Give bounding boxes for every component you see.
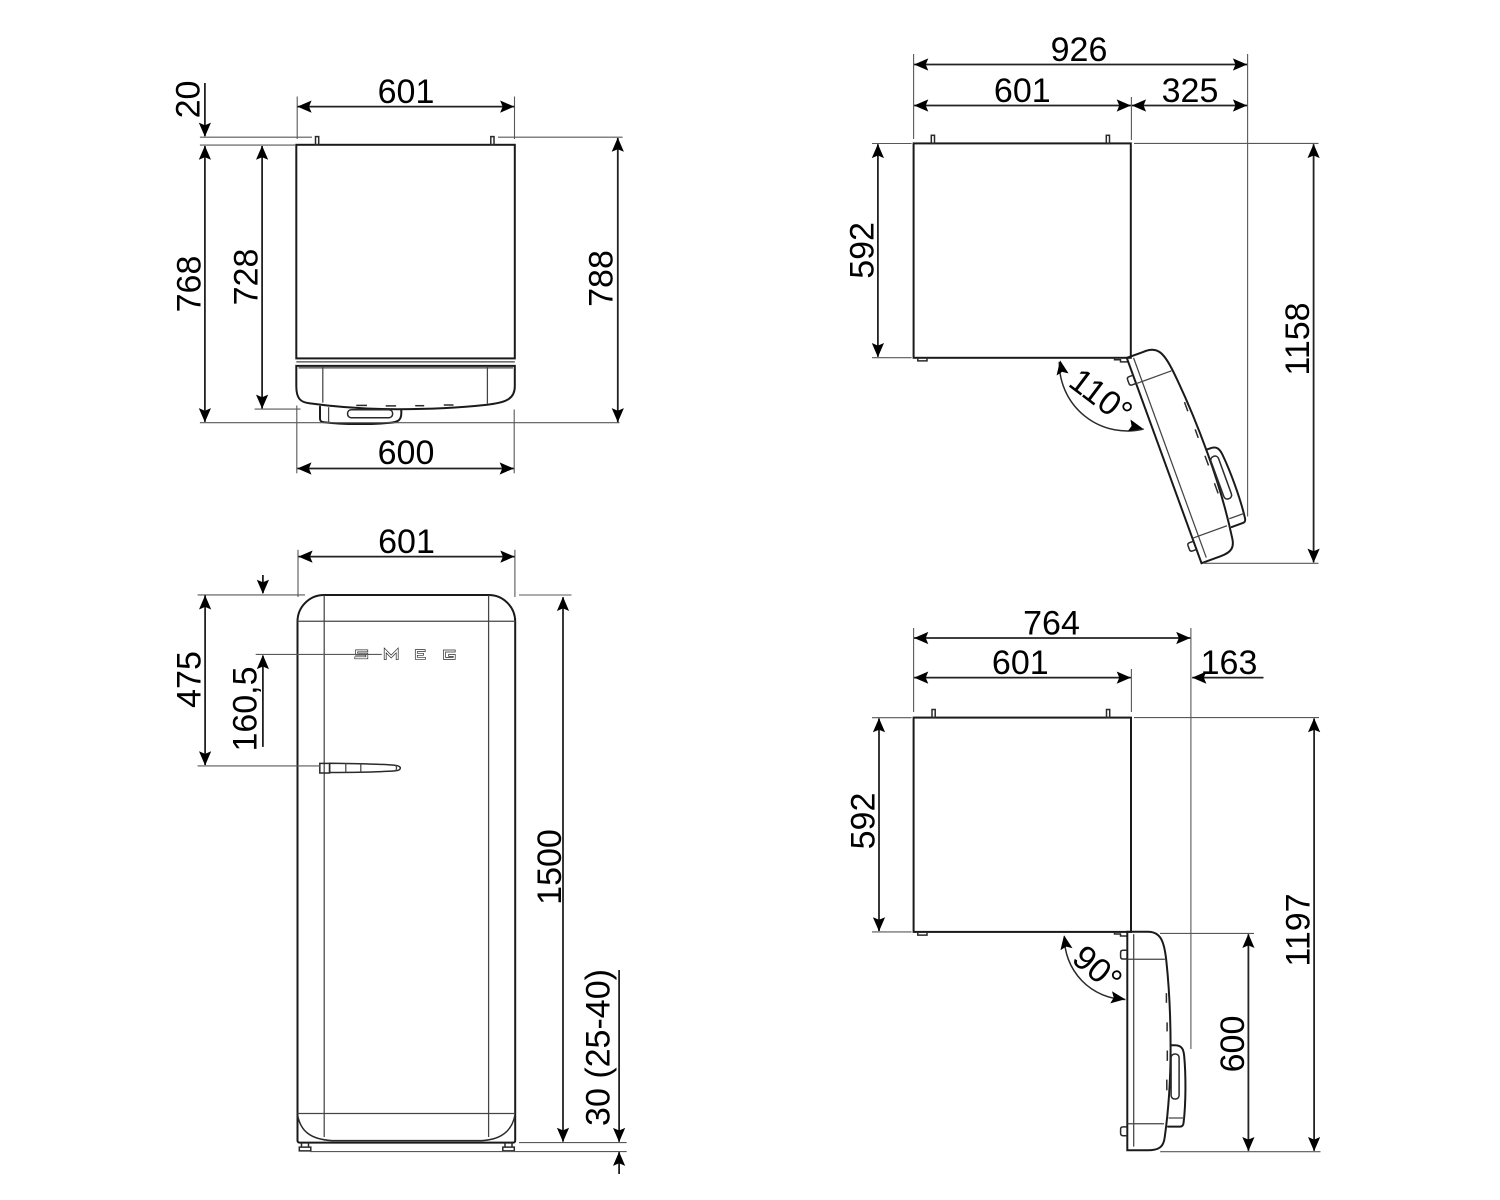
svg-text:728: 728 [227,249,265,306]
svg-text:592: 592 [843,222,881,279]
svg-text:926: 926 [1051,31,1108,69]
svg-text:764: 764 [1023,605,1080,643]
svg-text:30 (25-40): 30 (25-40) [580,969,618,1126]
svg-text:325: 325 [1162,72,1219,110]
svg-text:1158: 1158 [1279,302,1317,375]
svg-text:601: 601 [992,644,1049,682]
svg-text:1197: 1197 [1280,893,1318,966]
svg-text:601: 601 [378,73,435,111]
svg-text:20: 20 [170,81,208,119]
svg-text:601: 601 [378,523,435,561]
svg-text:601: 601 [994,72,1051,110]
svg-text:600: 600 [378,434,435,472]
svg-text:1500: 1500 [531,829,569,905]
svg-text:600: 600 [1214,1016,1252,1073]
svg-text:788: 788 [583,250,621,307]
svg-text:163: 163 [1201,644,1258,682]
svg-text:475: 475 [171,651,209,708]
svg-text:768: 768 [171,256,209,313]
svg-text:592: 592 [845,793,883,850]
svg-text:160,5: 160,5 [227,666,265,751]
